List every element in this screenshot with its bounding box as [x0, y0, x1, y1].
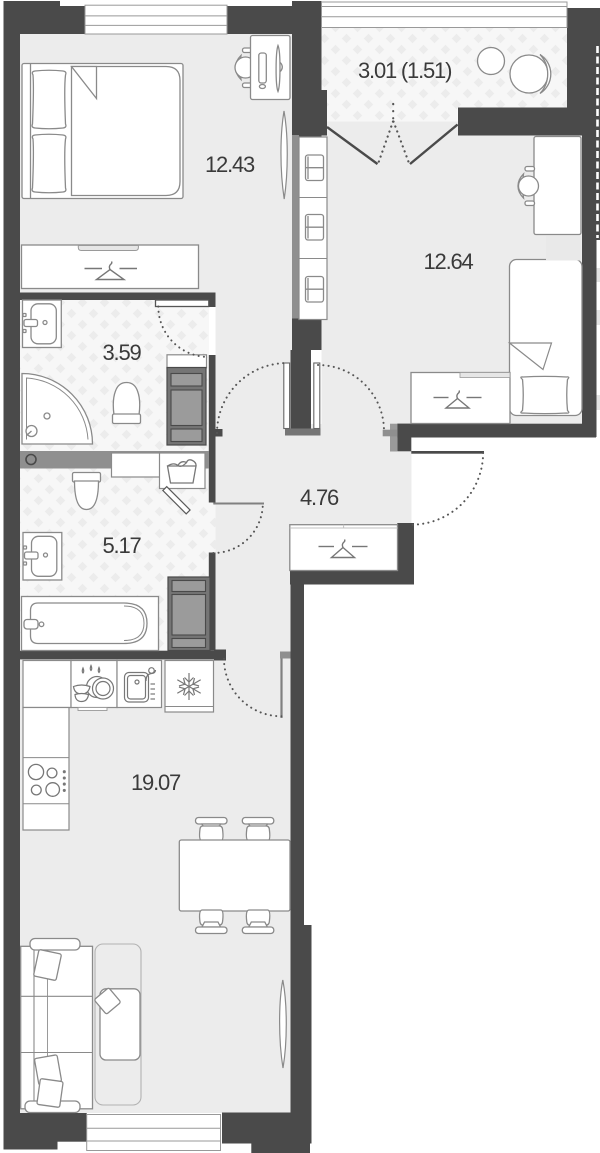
svg-text:5.17: 5.17	[103, 533, 142, 558]
svg-text:12.43: 12.43	[205, 152, 255, 177]
svg-text:4.76: 4.76	[300, 485, 339, 510]
svg-text:3.59: 3.59	[103, 340, 142, 365]
svg-text:3.01 (1.51): 3.01 (1.51)	[358, 58, 451, 83]
svg-text:12.64: 12.64	[424, 249, 474, 274]
svg-text:19.07: 19.07	[131, 770, 181, 795]
